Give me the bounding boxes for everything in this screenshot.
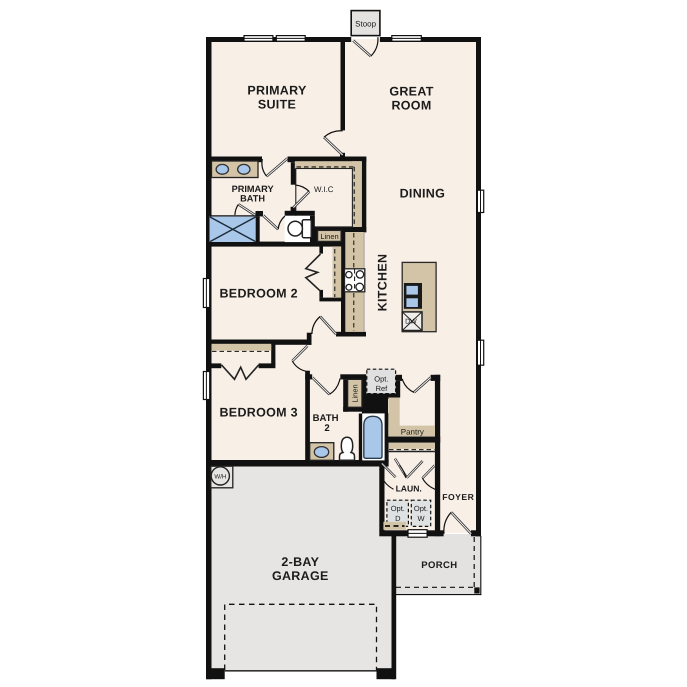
svg-text:GREAT: GREAT xyxy=(389,85,433,99)
svg-text:D: D xyxy=(395,514,401,523)
svg-text:Opt.: Opt. xyxy=(374,375,388,384)
svg-text:PRIMARY: PRIMARY xyxy=(247,84,307,98)
svg-text:2-BAY: 2-BAY xyxy=(281,555,319,569)
svg-text:Opt.: Opt. xyxy=(414,504,428,513)
svg-text:BEDROOM 2: BEDROOM 2 xyxy=(219,286,297,300)
svg-text:BEDROOM 3: BEDROOM 3 xyxy=(219,406,297,420)
svg-text:W: W xyxy=(417,514,425,523)
svg-text:Stoop: Stoop xyxy=(355,20,376,29)
svg-text:Linen: Linen xyxy=(320,232,338,241)
svg-text:LAUN.: LAUN. xyxy=(396,484,422,494)
svg-text:GARAGE: GARAGE xyxy=(272,569,329,583)
svg-text:FOYER: FOYER xyxy=(442,492,474,502)
svg-text:2: 2 xyxy=(324,423,329,434)
svg-text:ROOM: ROOM xyxy=(391,99,431,113)
svg-text:DW: DW xyxy=(405,318,417,325)
svg-text:W.I.C: W.I.C xyxy=(314,185,334,194)
svg-text:W/H: W/H xyxy=(214,473,226,480)
svg-text:BATH: BATH xyxy=(240,194,265,204)
svg-text:Linen: Linen xyxy=(351,384,360,402)
svg-text:PRIMARY: PRIMARY xyxy=(232,184,274,194)
svg-text:Opt.: Opt. xyxy=(391,504,405,513)
svg-text:Ref: Ref xyxy=(376,384,389,393)
svg-text:Pantry: Pantry xyxy=(401,427,424,436)
svg-text:SUITE: SUITE xyxy=(258,98,296,112)
svg-text:PORCH: PORCH xyxy=(421,560,457,571)
svg-text:KITCHEN: KITCHEN xyxy=(376,254,390,312)
svg-text:DINING: DINING xyxy=(400,186,446,200)
